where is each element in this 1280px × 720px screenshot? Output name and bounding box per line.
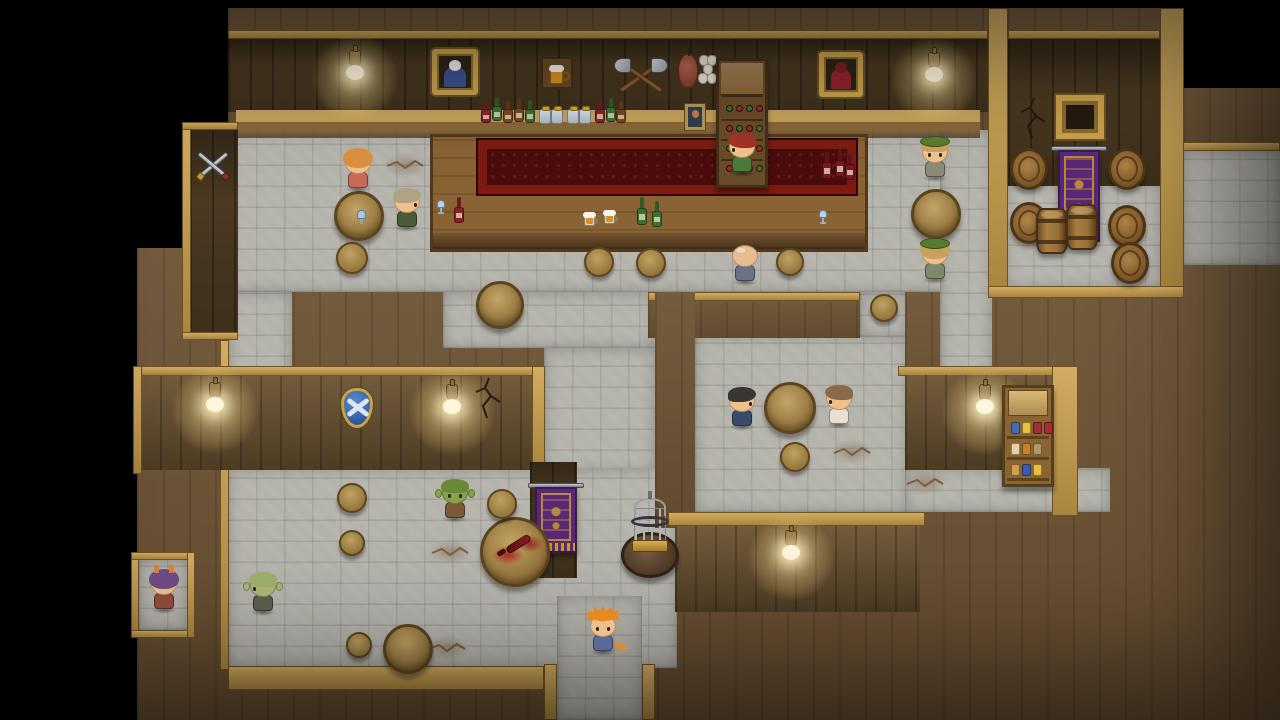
wall-lamp-4-bulb	[443, 399, 461, 414]
stool-8	[339, 530, 365, 556]
character-goblin-pale[interactable]	[245, 570, 281, 616]
trim-alcove-top	[131, 552, 195, 560]
character-patron-bald[interactable]	[727, 240, 763, 286]
wall-lamp-5-sconce	[979, 384, 991, 400]
shelf-bottle-6	[595, 100, 605, 123]
trim-swords-top	[182, 122, 238, 130]
trim-shield-panel-top	[133, 366, 539, 376]
shelf-bottle-4	[514, 99, 524, 122]
wall-se-room-left-col	[655, 292, 695, 528]
trim-storage-top	[1008, 30, 1160, 39]
wall-lamp-1-bulb	[346, 65, 364, 80]
shelf-bottle-3	[503, 101, 513, 123]
barrel-upright-2	[1066, 204, 1098, 250]
stool-3	[636, 248, 666, 278]
table-3	[476, 281, 524, 329]
shelf-jar-3	[567, 109, 579, 124]
crossed-swords	[189, 146, 237, 188]
trim-east-passage-top	[1183, 142, 1280, 151]
wall-lamp-4-sconce	[446, 384, 458, 400]
bar-glass-1	[437, 200, 445, 214]
wall-lamp-3-bulb	[206, 397, 224, 412]
wall-crack-shield-panel	[468, 376, 510, 420]
birdcage-table	[629, 498, 671, 552]
shelf-bottle-5	[525, 100, 535, 123]
floor-east-passage	[1183, 150, 1280, 265]
wall-south-lamp	[675, 526, 920, 612]
floor-mid-connector	[544, 348, 655, 472]
hanging-garlic	[698, 53, 718, 87]
trim-storage-left-col	[988, 8, 1008, 292]
floor-crack-3	[428, 539, 472, 565]
bar-bottle-red-4	[845, 154, 855, 180]
wall-lamp-2-sconce	[928, 52, 940, 68]
shelf-bottle-8	[616, 101, 626, 123]
trim-shield-panel-right	[532, 366, 545, 472]
bar-bottle-red-3	[835, 149, 845, 177]
tavern-game-viewport	[0, 0, 1280, 720]
wall-crack-storage	[1013, 96, 1055, 140]
character-hero[interactable]	[585, 610, 621, 656]
character-patron-brownhair[interactable]	[821, 383, 857, 429]
spilled-wine-table	[480, 517, 550, 587]
barrel-upright-1	[1036, 208, 1068, 254]
trim-south-corridor-left	[544, 664, 557, 720]
trim-storage-bottom	[988, 286, 1184, 298]
shelf-bottle-2	[492, 97, 502, 121]
character-patron-graymane[interactable]	[389, 186, 425, 232]
trim-alcove-left	[131, 552, 139, 638]
stool-7	[337, 483, 367, 513]
table-2	[911, 189, 961, 239]
stool-2	[584, 247, 614, 277]
floor-crack-1	[383, 152, 427, 178]
character-soldier-south[interactable]	[917, 238, 953, 284]
floor-crack-2	[830, 439, 874, 465]
shelf-jar-1	[539, 109, 551, 124]
painting-witch	[819, 52, 863, 97]
trim-storage-right-col	[1160, 8, 1184, 292]
character-barmaid[interactable]	[724, 131, 760, 177]
character-imp-purple[interactable]	[146, 568, 182, 614]
wall-lamp-2-bulb	[925, 67, 943, 82]
shelf-bottle-1	[481, 101, 491, 123]
character-patron-blonde[interactable]	[340, 147, 376, 193]
character-goblin-dark[interactable]	[437, 477, 473, 523]
stool-6	[780, 442, 810, 472]
bar-glass-2	[819, 210, 827, 224]
shelf-picture	[685, 104, 705, 130]
shelf-jar-2	[551, 109, 563, 124]
wall-lamp-6-sconce	[785, 530, 797, 546]
wall-lamp-6-bulb	[782, 545, 800, 560]
stool-5	[870, 294, 898, 322]
painting-sage	[432, 49, 478, 95]
character-patron-darkhair[interactable]	[724, 385, 760, 431]
trim-bar-top	[228, 30, 988, 39]
trim-alcove-bottom	[131, 630, 195, 638]
barrel-side-1	[1010, 148, 1048, 190]
stool-9	[487, 489, 517, 519]
hanging-ham	[677, 53, 699, 89]
trim-shield-panel-left	[133, 366, 142, 474]
barrel-side-4	[1108, 205, 1146, 247]
stool-10	[346, 632, 372, 658]
bar-carpet	[478, 140, 856, 194]
table-1	[334, 191, 384, 241]
table-4	[764, 382, 816, 434]
bar-bottle-red-1	[454, 197, 464, 223]
wall-lamp-3-sconce	[209, 382, 221, 398]
crossed-axes	[610, 52, 672, 102]
trim-south-wall-top	[668, 512, 925, 526]
bar-bottle-green-1	[637, 197, 647, 225]
wall-top-right-upper	[1183, 88, 1280, 150]
bar-bottle-green-2	[652, 201, 662, 227]
shelf-jar-4	[579, 109, 591, 124]
wall-lamp-5-bulb	[976, 399, 994, 414]
trim-swords-bottom	[182, 332, 238, 340]
beer-sign	[541, 57, 573, 89]
stool-4	[776, 248, 804, 276]
bar-mug-1	[584, 212, 598, 226]
stool-1	[336, 242, 368, 274]
wall-lamp-1-sconce	[349, 50, 361, 66]
floor-crack-5	[903, 470, 947, 496]
trim-alcove-right	[187, 552, 195, 638]
barrel-side-2	[1108, 148, 1146, 190]
barrel-side-5	[1111, 242, 1149, 284]
storage-window	[1056, 95, 1104, 139]
bar-bottle-red-2	[822, 151, 832, 179]
goods-shelf	[1002, 385, 1054, 487]
character-soldier-north[interactable]	[917, 136, 953, 182]
floor-crack-4	[425, 635, 469, 661]
trim-south-corridor-right	[642, 664, 655, 720]
bar-mug-2	[604, 210, 618, 224]
shelf-bottle-7	[606, 98, 616, 122]
floor-mid-corridor	[443, 292, 655, 348]
trim-pantry-right-col	[1052, 366, 1078, 516]
trim-southwest-band	[228, 666, 544, 690]
